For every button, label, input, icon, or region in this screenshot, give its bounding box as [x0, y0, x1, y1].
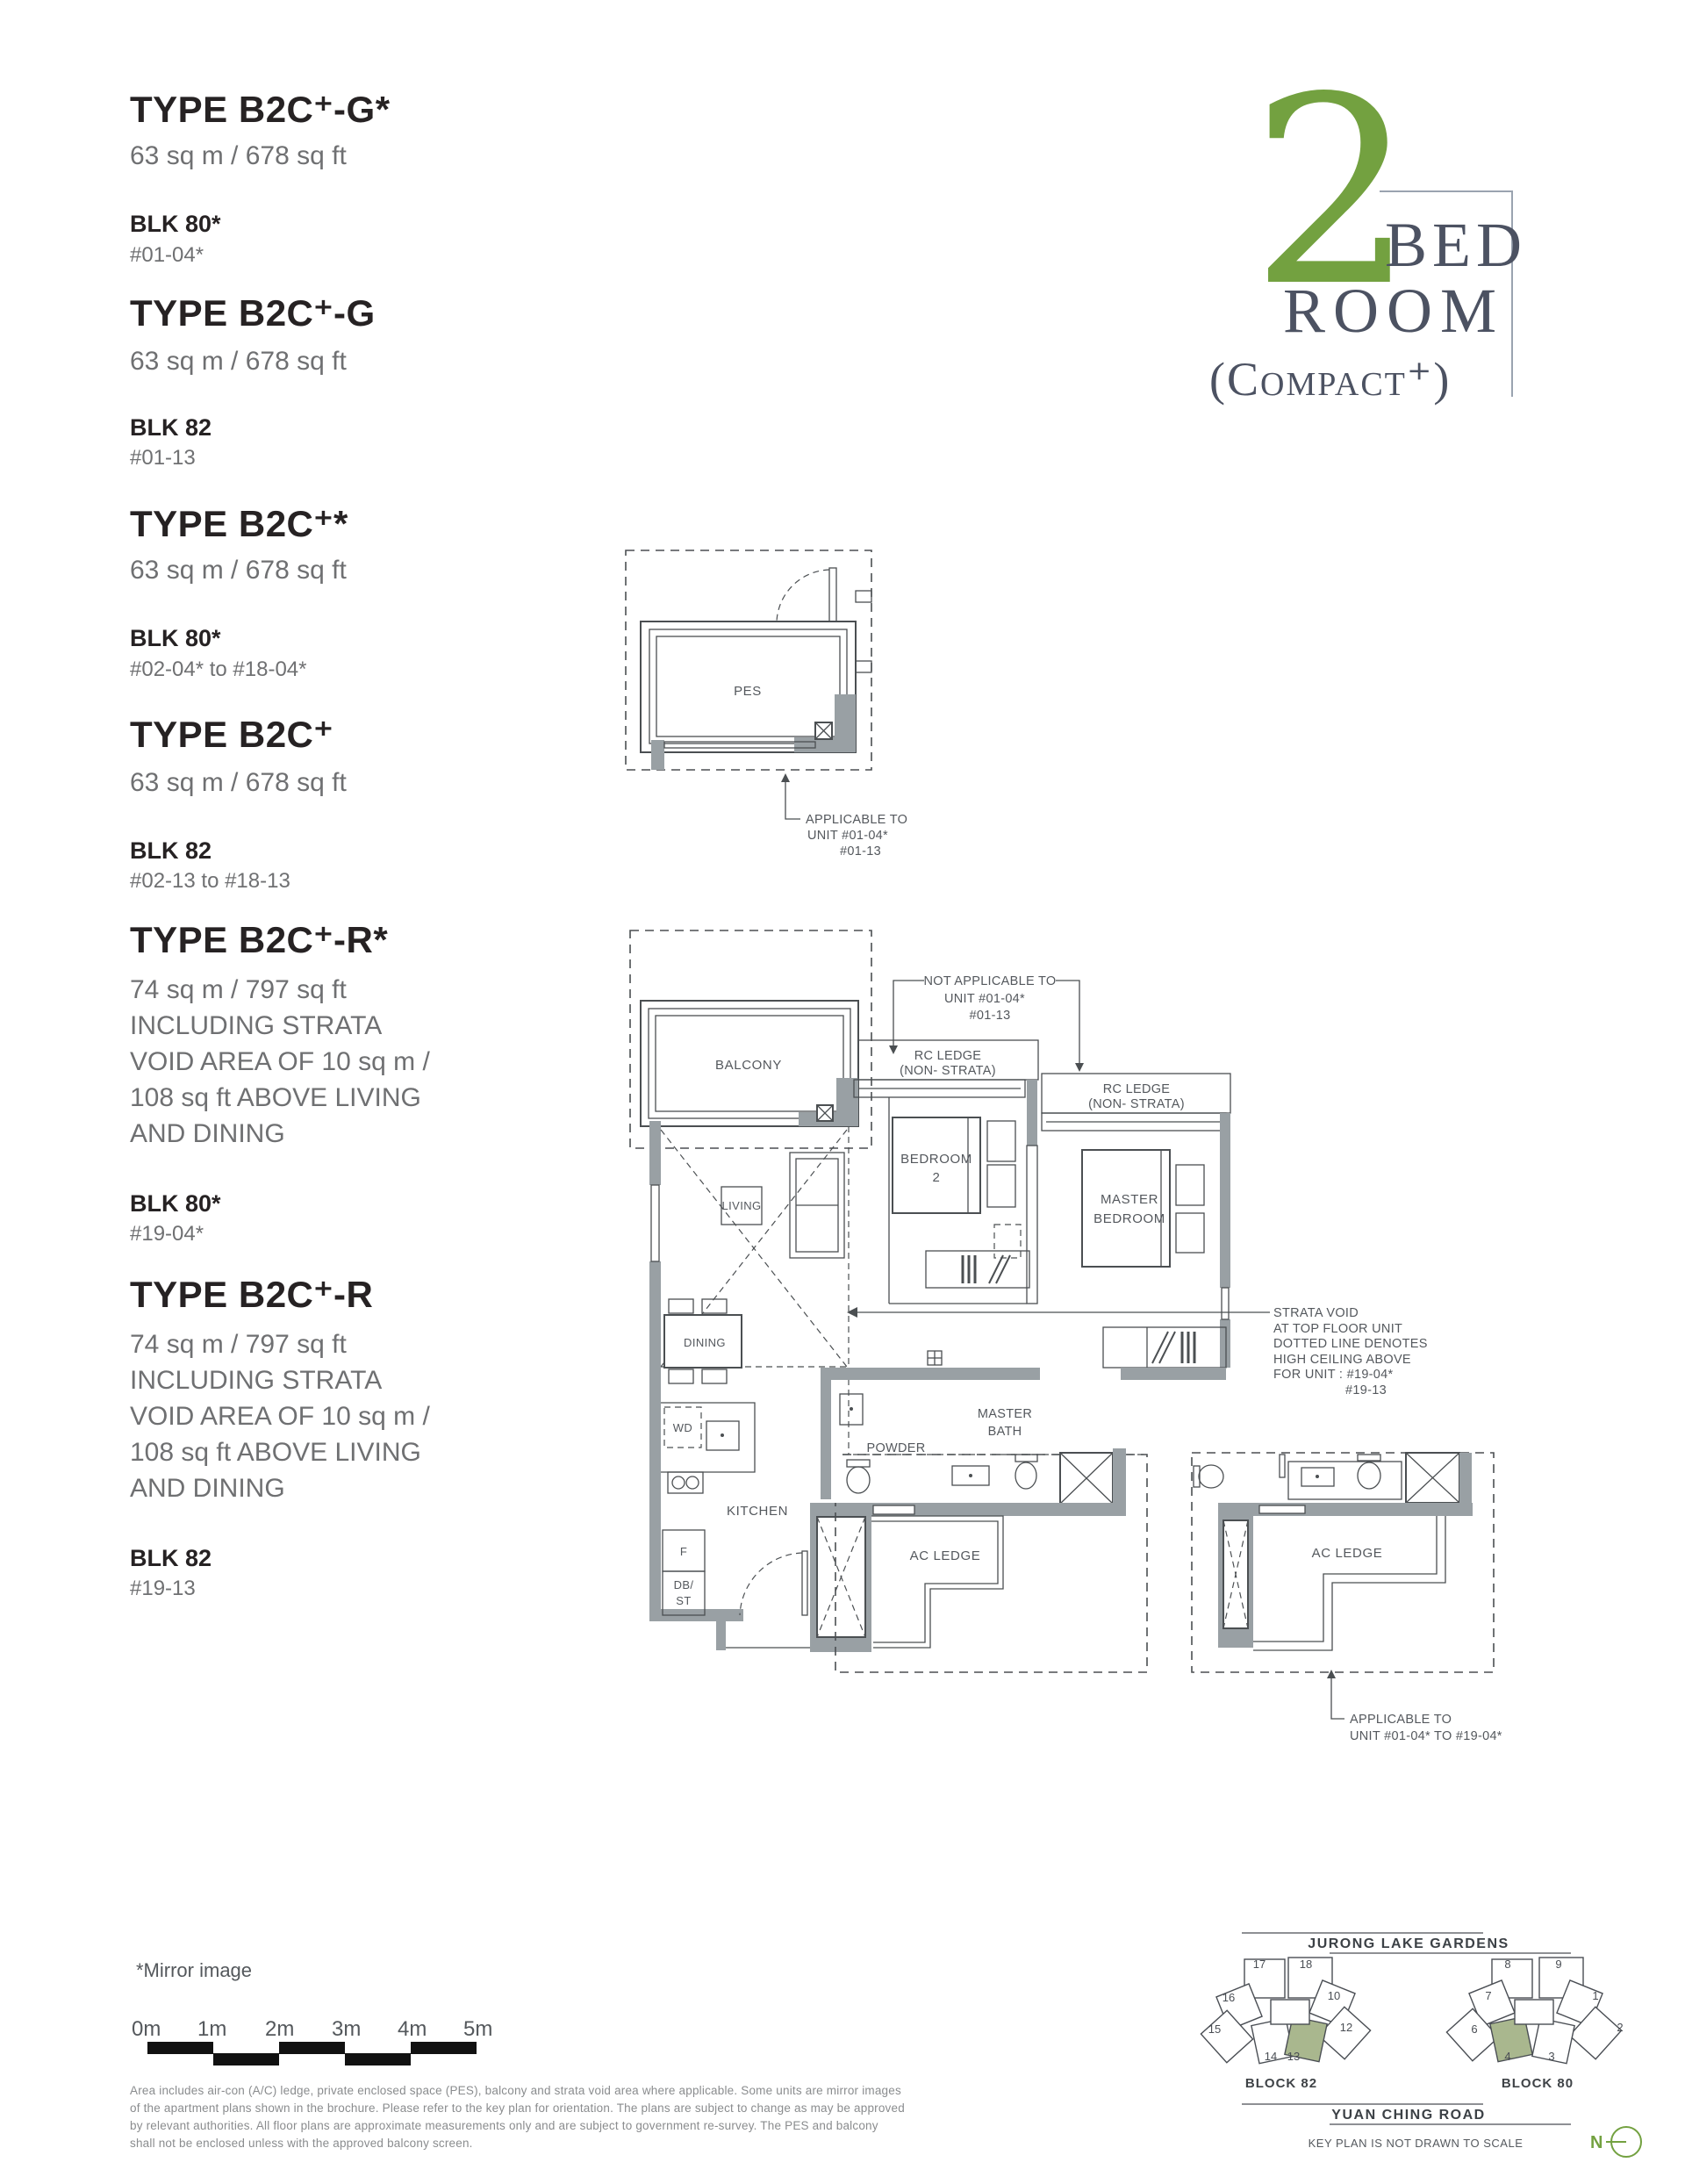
svg-text:2: 2 [933, 1170, 941, 1185]
type-section-3: TYPE B2C⁺* 63 sq m / 678 sq ft BLK 80* #… [130, 502, 348, 682]
type-area: 63 sq m / 678 sq ft [130, 343, 376, 379]
type-name: TYPE B2C⁺* [130, 502, 348, 545]
header-compact: (Compact⁺) [1209, 351, 1451, 406]
type-blk: BLK 82 [130, 1545, 430, 1572]
svg-text:UNIT #01-04*: UNIT #01-04* [944, 992, 1025, 1006]
dining-label: DINING [684, 1336, 726, 1349]
right-toilet-2 [1358, 1462, 1380, 1489]
north-indicator: N [1590, 2133, 1603, 2152]
svg-text:13: 13 [1287, 2050, 1300, 2063]
type-area-line: 74 sq m / 797 sq ft [130, 1326, 430, 1362]
powder-toilet [847, 1467, 870, 1493]
scale-segment [147, 2042, 213, 2054]
scale-segment [279, 2042, 345, 2054]
right-note-line: APPLICABLE TO [1350, 1713, 1452, 1727]
keyplan-block80-label: BLOCK 80 [1502, 2076, 1574, 2091]
type-section-5: TYPE B2C⁺-R* 74 sq m / 797 sq ft INCLUDI… [130, 918, 430, 1246]
svg-text:BATH: BATH [988, 1425, 1022, 1439]
svg-text:HIGH CEILING ABOVE: HIGH CEILING ABOVE [1273, 1353, 1411, 1367]
kitchen-sink [668, 1472, 703, 1493]
floorplan-page: TYPE B2C⁺-G* 63 sq m / 678 sq ft BLK 80*… [0, 0, 1685, 2184]
scale-segment [213, 2053, 279, 2065]
scale-tick: 4m [398, 2017, 427, 2042]
master-bedroom-label: MASTER [1101, 1192, 1158, 1207]
type-units: #02-04* to #18-04* [130, 657, 348, 682]
bath-toilet [1015, 1462, 1036, 1489]
disclaimer-line: by relevant authorities. All floor plans… [130, 2117, 905, 2135]
disclaimer-line: of the apartment plans shown in the broc… [130, 2100, 905, 2117]
pes-note-line: APPLICABLE TO [806, 813, 907, 827]
bedroom2-dresser [926, 1251, 1029, 1288]
svg-text:(NON- STRATA): (NON- STRATA) [900, 1064, 996, 1078]
keyplan-scale-note: KEY PLAN IS NOT DRAWN TO SCALE [1309, 2137, 1524, 2150]
svg-text:18: 18 [1300, 1958, 1312, 1971]
type-area: 63 sq m / 678 sq ft [130, 765, 347, 801]
right-ac-ledge-outline [1253, 1516, 1437, 1642]
keyplan-block82: 17 18 16 10 15 12 14 13 BLOCK 82 [1201, 1958, 1370, 2091]
type-name: TYPE B2C⁺-G* [130, 88, 391, 131]
svg-text:WD: WD [673, 1421, 692, 1434]
type-name: TYPE B2C⁺ [130, 713, 347, 756]
pes-plan-svg: PES APPLICABLE TO UNIT #01-04* #01-13 [610, 522, 943, 873]
type-area-line: AND DINING [130, 1470, 430, 1506]
ac-ledge-label: AC LEDGE [910, 1548, 981, 1563]
type-blk: BLK 80* [130, 625, 348, 652]
svg-text:9: 9 [1555, 1958, 1561, 1971]
living-label: LIVING [721, 1199, 761, 1212]
svg-text:2: 2 [1617, 2021, 1623, 2034]
type-name: TYPE B2C⁺-G [130, 291, 376, 334]
svg-text:12: 12 [1340, 2021, 1352, 2034]
scale-segment [345, 2053, 411, 2065]
header-bed: BED [1385, 209, 1527, 282]
svg-text:F: F [680, 1545, 687, 1558]
type-units: #01-13 [130, 446, 376, 471]
pes-note-line: UNIT #01-04* [807, 829, 888, 843]
ac-ledge-outline [871, 1516, 1003, 1648]
balcony-label: BALCONY [715, 1058, 782, 1073]
type-units: #19-13 [130, 1577, 430, 1601]
scale-tick: 0m [132, 2017, 161, 2042]
scale-tick: 1m [197, 2017, 226, 2042]
svg-text:17: 17 [1253, 1958, 1266, 1971]
disclaimer: Area includes air-con (A/C) ledge, priva… [130, 2082, 905, 2152]
type-section-1: TYPE B2C⁺-G* 63 sq m / 678 sq ft BLK 80*… [130, 88, 391, 268]
svg-text:AT TOP FLOOR UNIT: AT TOP FLOOR UNIT [1273, 1322, 1402, 1336]
right-plan-svg: AC LEDGE APPLICABLE TO UNIT #01-04* TO #… [1185, 1440, 1527, 1747]
pes-note-arrow [781, 773, 790, 782]
scale-segment [411, 2042, 477, 2054]
svg-text:4: 4 [1504, 2050, 1510, 2063]
keyplan-block80: 8 9 7 1 6 2 4 3 BLOCK 80 [1446, 1958, 1623, 2091]
pes-note-leader [785, 780, 800, 819]
svg-text:7: 7 [1485, 1989, 1491, 2002]
type-area-line: INCLUDING STRATA [130, 1008, 430, 1044]
type-area-line: 74 sq m / 797 sq ft [130, 972, 430, 1008]
scale-bar: 0m 1m 2m 3m 4m 5m [132, 2017, 500, 2066]
type-area-line: 108 sq ft ABOVE LIVING [130, 1434, 430, 1470]
master-wardrobe [1103, 1327, 1226, 1368]
svg-text:14: 14 [1265, 2050, 1277, 2063]
right-ac-ledge-label: AC LEDGE [1312, 1546, 1383, 1561]
type-area-line: VOID AREA OF 10 sq m / [130, 1044, 430, 1080]
type-area: 63 sq m / 678 sq ft [130, 552, 348, 588]
keyplan-road-label: YUAN CHING ROAD [1331, 2108, 1485, 2123]
keyplan-garden-label: JURONG LAKE GARDENS [1308, 1936, 1509, 1951]
not-applicable-note: NOT APPLICABLE TO [924, 974, 1057, 988]
type-section-2: TYPE B2C⁺-G 63 sq m / 678 sq ft BLK 82 #… [130, 291, 376, 471]
kitchen-label: KITCHEN [727, 1504, 788, 1519]
svg-text:(NON- STRATA): (NON- STRATA) [1088, 1097, 1185, 1111]
svg-text:16: 16 [1223, 1991, 1235, 2004]
powder-label: POWDER [866, 1441, 925, 1455]
type-section-4: TYPE B2C⁺ 63 sq m / 678 sq ft BLK 82 #02… [130, 713, 347, 894]
svg-text:DB/: DB/ [674, 1578, 694, 1591]
svg-text:DOTTED LINE DENOTES: DOTTED LINE DENOTES [1273, 1337, 1428, 1351]
svg-text:3: 3 [1548, 2050, 1554, 2063]
scale-tick: 5m [463, 2017, 492, 2042]
master-right-wall [1220, 1113, 1230, 1368]
disclaimer-line: Area includes air-con (A/C) ledge, priva… [130, 2082, 905, 2100]
type-blk: BLK 80* [130, 1190, 430, 1218]
svg-text:#19-13: #19-13 [1345, 1383, 1387, 1397]
pes-door-leaf [829, 568, 836, 621]
type-section-6: TYPE B2C⁺-R 74 sq m / 797 sq ft INCLUDIN… [130, 1273, 430, 1601]
right-toilet-1 [1199, 1465, 1223, 1488]
rc-ledge-2-label: RC LEDGE [1103, 1082, 1171, 1096]
svg-text:8: 8 [1504, 1958, 1510, 1971]
pes-door-swing [777, 570, 829, 621]
right-note-leader [1331, 1677, 1344, 1719]
type-blk: BLK 82 [130, 414, 376, 442]
pes-note-line: #01-13 [840, 844, 881, 859]
kitchen-counter [661, 1403, 755, 1472]
type-units: #02-13 to #18-13 [130, 869, 347, 894]
scale-tick: 2m [265, 2017, 294, 2042]
type-blk: BLK 80* [130, 211, 391, 238]
type-name: TYPE B2C⁺-R* [130, 918, 430, 961]
disclaimer-line: shall not be enclosed unless with the ap… [130, 2135, 905, 2152]
svg-text:6: 6 [1471, 2022, 1477, 2036]
entry-door-leaf [802, 1551, 807, 1615]
type-units: #19-04* [130, 1222, 430, 1246]
type-name: TYPE B2C⁺-R [130, 1273, 430, 1316]
scale-tick: 3m [332, 2017, 361, 2042]
master-bed [1082, 1150, 1170, 1267]
svg-text:15: 15 [1208, 2022, 1221, 2036]
mirror-image-note: *Mirror image [136, 1959, 252, 1982]
svg-text:10: 10 [1328, 1989, 1340, 2002]
master-bath-label: MASTER [978, 1407, 1032, 1421]
keyplan-block82-label: BLOCK 82 [1245, 2076, 1317, 2091]
header-room: ROOM [1283, 275, 1504, 348]
type-units: #01-04* [130, 243, 391, 268]
type-blk: BLK 82 [130, 837, 347, 865]
type-area-line: AND DINING [130, 1116, 430, 1152]
svg-text:1: 1 [1592, 1989, 1598, 2002]
header-rule-top [1380, 190, 1512, 192]
svg-text:ST: ST [676, 1594, 691, 1607]
key-plan-svg: JURONG LAKE GARDENS 17 18 16 10 15 12 14… [1202, 1922, 1667, 2177]
type-area: 63 sq m / 678 sq ft [130, 138, 391, 174]
type-area-line: VOID AREA OF 10 sq m / [130, 1398, 430, 1434]
rc-ledge-1-label: RC LEDGE [914, 1049, 982, 1063]
type-area-line: INCLUDING STRATA [130, 1362, 430, 1398]
svg-text:BEDROOM: BEDROOM [1093, 1211, 1165, 1226]
pes-room-label: PES [734, 684, 762, 699]
type-area-line: 108 sq ft ABOVE LIVING [130, 1080, 430, 1116]
bedroom2-label: BEDROOM [900, 1152, 972, 1167]
svg-text:FOR UNIT : #19-04*: FOR UNIT : #19-04* [1273, 1368, 1394, 1382]
right-note-line: UNIT #01-04* TO #19-04* [1350, 1729, 1502, 1743]
svg-text:#01-13: #01-13 [970, 1009, 1011, 1023]
entry-door-swing [740, 1553, 802, 1615]
strata-void-note: STRATA VOID [1273, 1306, 1359, 1320]
